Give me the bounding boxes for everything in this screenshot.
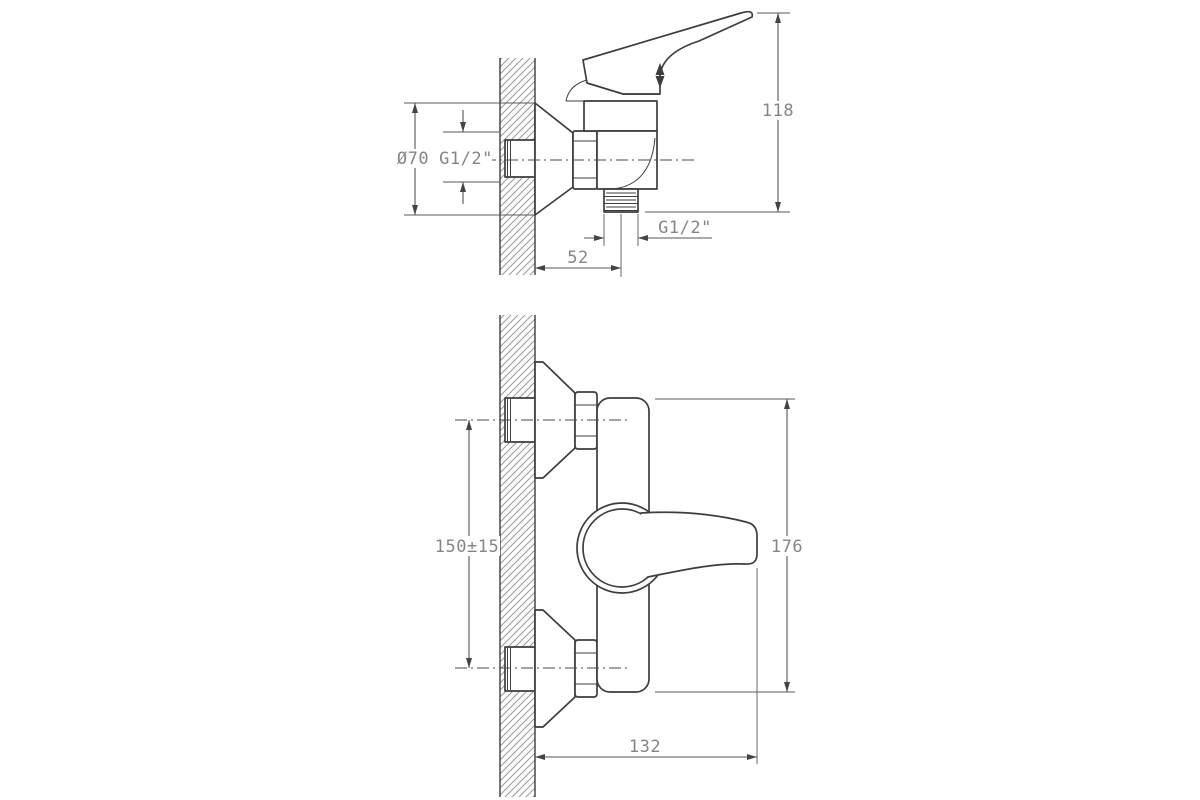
escutcheon-cone-bottom	[535, 610, 575, 727]
wall-hatch-front	[500, 315, 535, 797]
lever-handle-front	[641, 512, 757, 577]
connection-nut-top	[575, 392, 597, 449]
dim-label-depth-from-wall: 132	[629, 737, 661, 757]
supply-pipe-bottom	[505, 647, 535, 691]
dim-label-overall-height-side: 118	[762, 101, 794, 121]
dim-wall-to-outlet: 52	[535, 248, 621, 268]
dim-label-wall-thread: G1/2"	[439, 149, 493, 169]
outlet-thread-stub	[604, 189, 638, 212]
dim-flange-diameter: Ø70	[392, 103, 436, 215]
technical-drawing-page: Ø70 G1/2" 118 G1/2" 52	[0, 0, 1200, 800]
dim-label-flange-diameter: Ø70	[397, 149, 429, 169]
dim-label-outlet-thread: G1/2"	[658, 218, 712, 238]
side-view: Ø70 G1/2" 118 G1/2" 52	[392, 12, 795, 277]
connection-nut-bottom	[575, 640, 597, 697]
escutcheon-cone-side	[535, 103, 573, 215]
dim-label-overall-height-front: 176	[771, 537, 803, 557]
dim-label-wall-to-outlet: 52	[567, 248, 588, 268]
supply-pipe-side	[505, 140, 535, 177]
dim-connection-spacing: 150±15	[434, 420, 500, 668]
shower-mixer-drawing: Ø70 G1/2" 118 G1/2" 52	[0, 0, 1200, 800]
wall-section-front	[500, 315, 535, 797]
lever-handle-side	[583, 12, 752, 94]
dim-label-connection-spacing: 150±15	[435, 537, 499, 557]
front-view: 150±15 176 132	[434, 315, 805, 797]
dim-wall-thread: G1/2"	[439, 110, 493, 204]
dim-outlet-thread: G1/2"	[584, 218, 712, 238]
